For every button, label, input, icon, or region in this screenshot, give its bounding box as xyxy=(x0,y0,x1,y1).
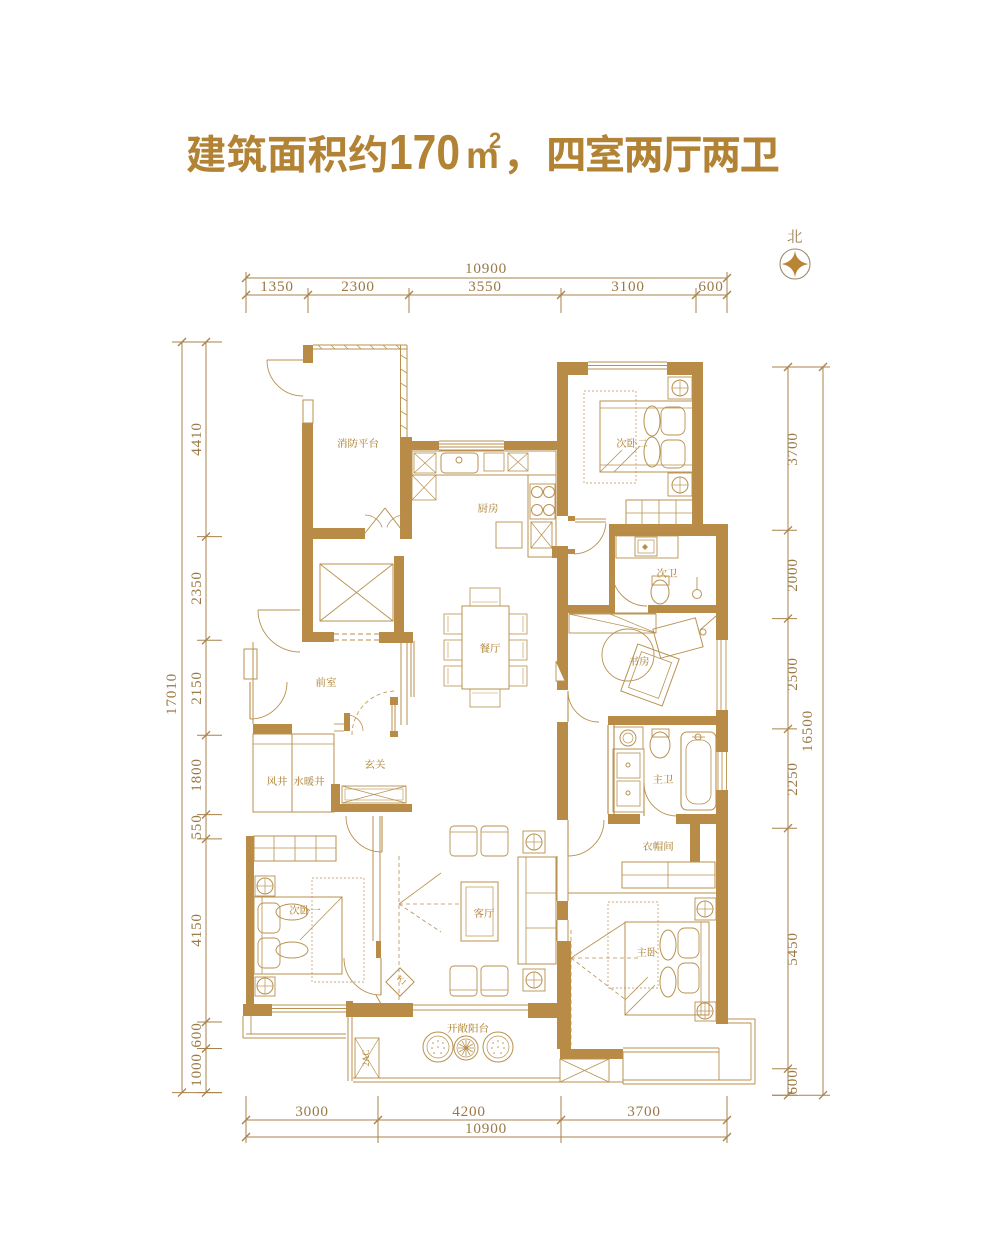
svg-text:4150: 4150 xyxy=(188,913,205,947)
svg-text:600: 600 xyxy=(698,278,723,295)
svg-text:2350: 2350 xyxy=(188,571,205,605)
svg-text:17010: 17010 xyxy=(163,673,180,715)
svg-text:2000: 2000 xyxy=(784,558,801,592)
svg-text:600: 600 xyxy=(784,1069,801,1094)
svg-text:550: 550 xyxy=(188,814,205,839)
svg-text:10900: 10900 xyxy=(465,260,507,277)
svg-text:10900: 10900 xyxy=(465,1120,507,1137)
svg-text:600: 600 xyxy=(188,1022,205,1047)
svg-text:2500: 2500 xyxy=(784,657,801,691)
svg-text:1350: 1350 xyxy=(260,278,294,295)
svg-text:4200: 4200 xyxy=(452,1103,486,1120)
svg-text:2300: 2300 xyxy=(341,278,375,295)
svg-text:3100: 3100 xyxy=(611,278,645,295)
svg-text:3700: 3700 xyxy=(627,1103,661,1120)
svg-text:3700: 3700 xyxy=(784,432,801,466)
svg-text:16500: 16500 xyxy=(799,710,816,752)
svg-text:2: 2 xyxy=(489,128,501,153)
svg-text:5450: 5450 xyxy=(784,932,801,966)
svg-text:2AC: 2AC xyxy=(361,1049,371,1066)
svg-text:1800: 1800 xyxy=(188,758,205,792)
svg-text:170: 170 xyxy=(389,124,460,179)
svg-text:2250: 2250 xyxy=(784,762,801,796)
svg-text:3550: 3550 xyxy=(468,278,502,295)
svg-text:4410: 4410 xyxy=(188,422,205,456)
svg-text:2150: 2150 xyxy=(188,671,205,705)
svg-text:3000: 3000 xyxy=(295,1103,329,1120)
svg-text:1000: 1000 xyxy=(188,1053,205,1087)
